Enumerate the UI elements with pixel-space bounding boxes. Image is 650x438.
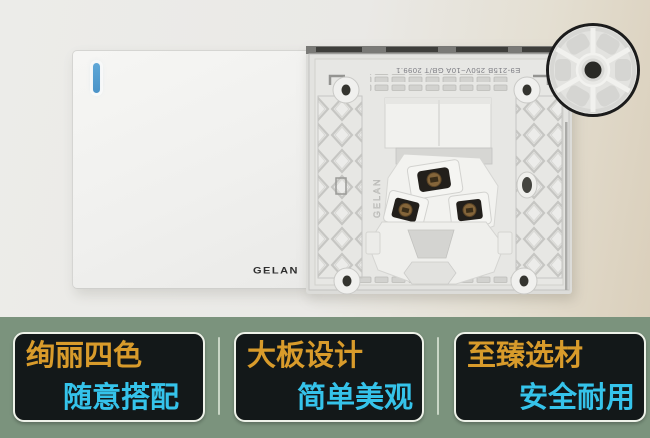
switch-front-panel: GELAN	[72, 50, 311, 289]
magnifier-detail-circle	[546, 23, 640, 117]
feature-strip: 绚丽四色 随意搭配 大板设计 简单美观 至臻选材 安全耐用	[0, 317, 650, 438]
brand-label: GELAN	[253, 266, 299, 276]
product-showcase: GELAN	[0, 0, 650, 438]
feature-title: 大板设计	[247, 339, 363, 374]
screw-boss-zoom-icon	[549, 26, 637, 114]
switch-back-panel: E9-215B 250V~10A GB/T 2099.1	[306, 44, 572, 296]
embossed-brand-label: GELAN	[372, 177, 382, 218]
feature-title: 绚丽四色	[26, 339, 142, 374]
feature-subtitle: 随意搭配	[63, 381, 179, 416]
product-photo-area: GELAN	[0, 0, 650, 320]
feature-divider	[437, 337, 439, 415]
feature-divider	[218, 337, 220, 415]
feature-subtitle: 安全耐用	[519, 381, 635, 416]
feature-subtitle: 简单美观	[297, 381, 413, 416]
feature-card-material: 至臻选材 安全耐用	[454, 332, 646, 422]
switch-indicator-bar	[93, 63, 100, 93]
feature-card-colors: 绚丽四色 随意搭配	[13, 332, 205, 422]
socket-module	[366, 98, 512, 284]
cable-entry-hole	[517, 172, 537, 198]
embossed-marking: E9-215B 250V~10A GB/T 2099.1	[396, 66, 521, 75]
feature-card-design: 大板设计 简单美观	[234, 332, 424, 422]
feature-title: 至臻选材	[467, 339, 583, 374]
